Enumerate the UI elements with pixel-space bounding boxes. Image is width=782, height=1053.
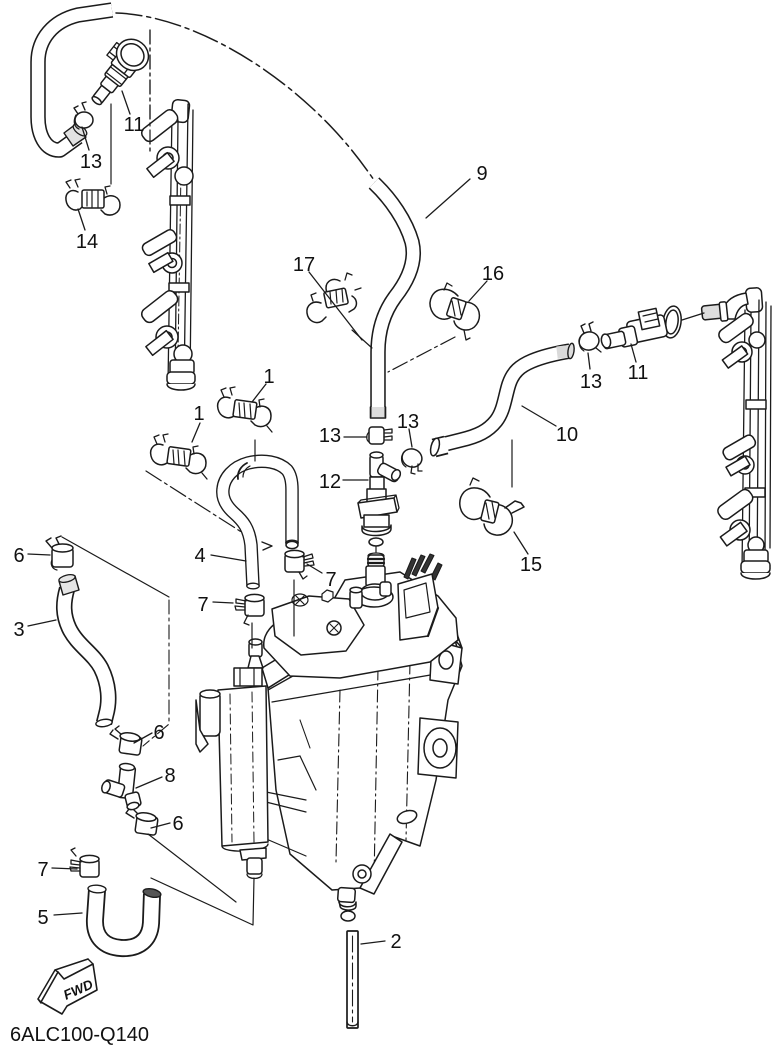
- svg-text:17: 17: [293, 254, 315, 276]
- svg-text:8: 8: [164, 765, 175, 787]
- svg-text:1: 1: [193, 403, 204, 425]
- svg-text:13: 13: [319, 425, 341, 447]
- svg-text:4: 4: [194, 545, 205, 567]
- svg-text:13: 13: [397, 411, 419, 433]
- svg-text:5: 5: [37, 907, 48, 929]
- svg-text:3: 3: [13, 619, 24, 641]
- svg-text:9: 9: [476, 163, 487, 185]
- svg-text:6ALC100-Q140: 6ALC100-Q140: [10, 1024, 149, 1046]
- svg-text:13: 13: [80, 151, 102, 173]
- svg-text:10: 10: [556, 424, 578, 446]
- svg-text:16: 16: [482, 263, 504, 285]
- svg-text:12: 12: [319, 471, 341, 493]
- svg-text:7: 7: [325, 569, 336, 591]
- svg-text:7: 7: [37, 859, 48, 881]
- svg-text:11: 11: [124, 114, 145, 136]
- svg-text:13: 13: [580, 371, 602, 393]
- svg-text:15: 15: [520, 554, 542, 576]
- svg-text:2: 2: [390, 931, 401, 953]
- svg-text:6: 6: [13, 545, 24, 567]
- svg-text:11: 11: [628, 362, 649, 384]
- svg-text:6: 6: [153, 722, 164, 744]
- svg-text:7: 7: [197, 594, 208, 616]
- svg-text:6: 6: [172, 813, 183, 835]
- svg-text:1: 1: [263, 366, 274, 388]
- svg-text:14: 14: [76, 231, 98, 253]
